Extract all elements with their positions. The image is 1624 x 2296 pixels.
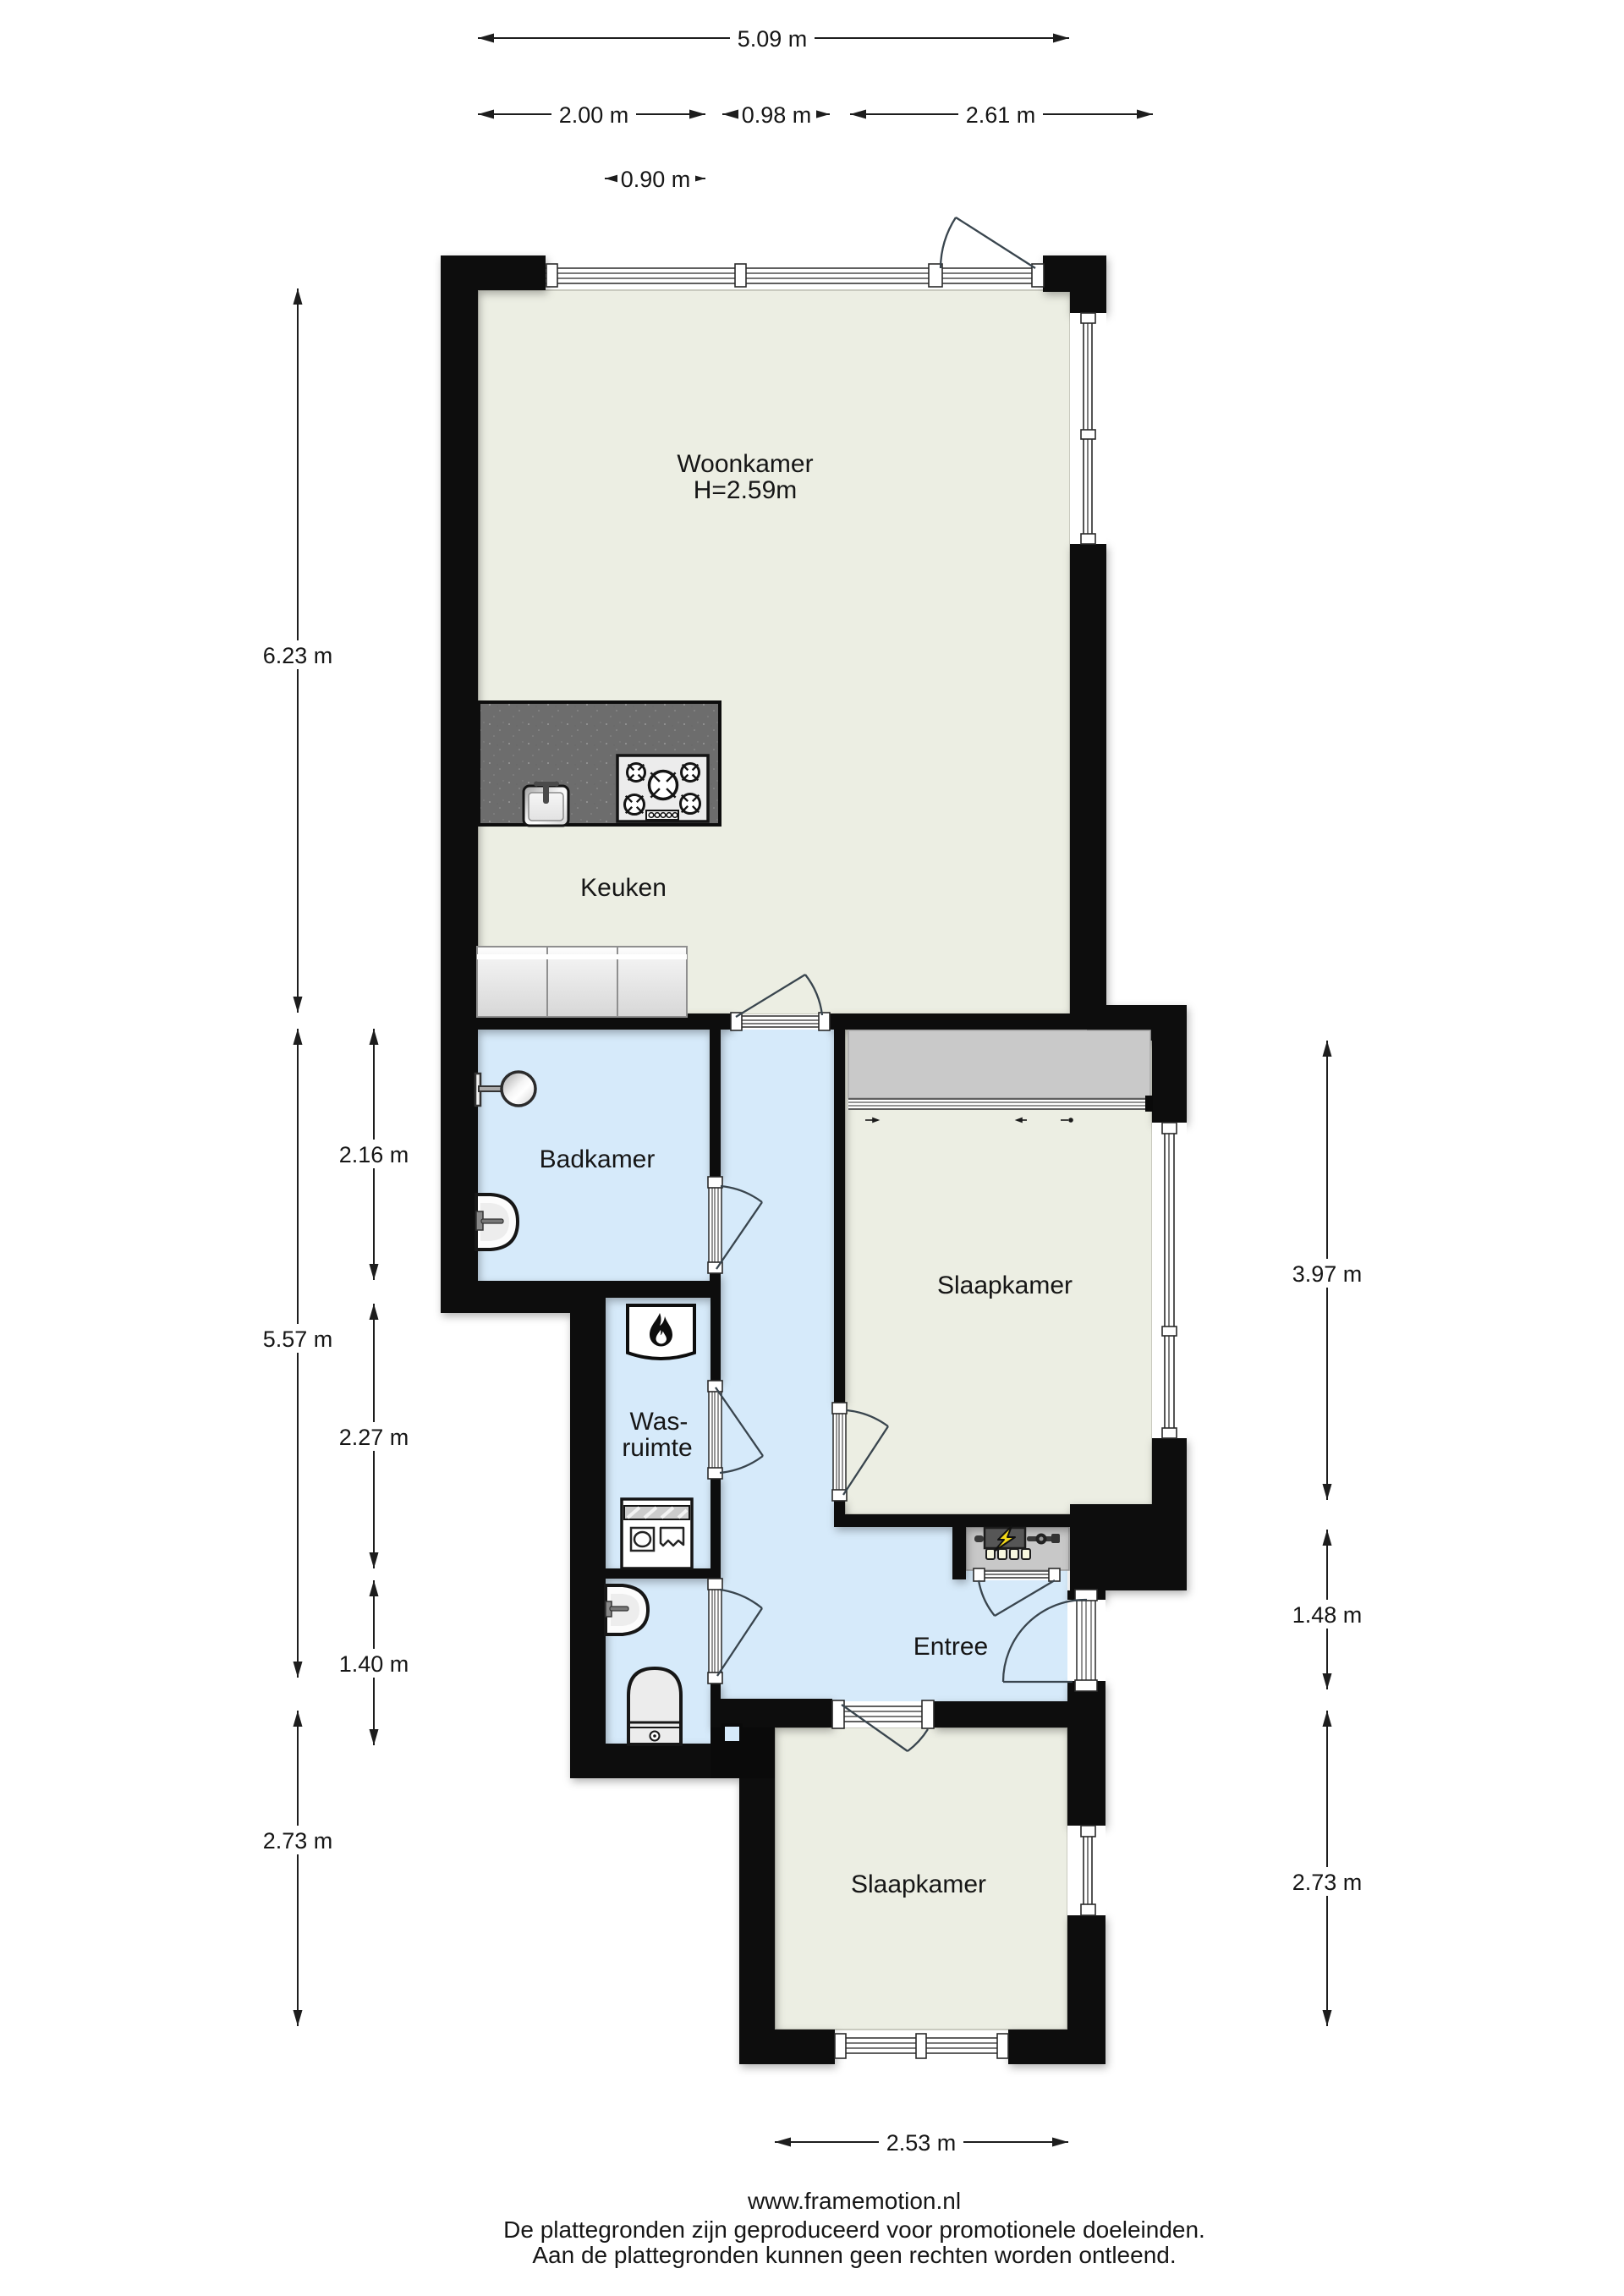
svg-text:Slaapkamer: Slaapkamer (851, 1870, 986, 1898)
svg-text:Keuken: Keuken (580, 874, 667, 902)
svg-text:Badkamer: Badkamer (540, 1145, 656, 1173)
svg-text:1.48 m: 1.48 m (1292, 1602, 1363, 1628)
svg-text:2.27 m: 2.27 m (339, 1425, 409, 1450)
svg-text:Was-: Was- (630, 1408, 689, 1436)
svg-text:www.framemotion.nl: www.framemotion.nl (747, 2188, 961, 2214)
svg-text:Aan de plattegronden kunnen ge: Aan de plattegronden kunnen geen rechten… (532, 2242, 1176, 2268)
svg-text:H=2.59m: H=2.59m (694, 476, 798, 504)
svg-text:5.09 m: 5.09 m (738, 26, 808, 52)
svg-text:2.61 m: 2.61 m (966, 102, 1036, 128)
svg-text:0.90 m: 0.90 m (621, 167, 691, 192)
svg-text:6.23 m: 6.23 m (263, 643, 333, 668)
svg-text:ruimte: ruimte (622, 1434, 692, 1462)
svg-text:2.73 m: 2.73 m (1292, 1870, 1363, 1895)
svg-text:2.00 m: 2.00 m (559, 102, 629, 128)
svg-text:2.53 m: 2.53 m (886, 2130, 957, 2156)
svg-text:3.97 m: 3.97 m (1292, 1261, 1363, 1287)
svg-text:5.57 m: 5.57 m (263, 1327, 333, 1352)
svg-text:2.16 m: 2.16 m (339, 1142, 409, 1167)
svg-text:2.73 m: 2.73 m (263, 1828, 333, 1854)
svg-text:Entree: Entree (913, 1633, 988, 1661)
svg-text:Slaapkamer: Slaapkamer (937, 1272, 1073, 1299)
svg-text:0.98 m: 0.98 m (742, 102, 812, 128)
svg-text:1.40 m: 1.40 m (339, 1651, 409, 1677)
svg-text:De plattegronden zijn geproduc: De plattegronden zijn geproduceerd voor … (503, 2216, 1205, 2243)
svg-text:Woonkamer: Woonkamer (677, 450, 813, 478)
